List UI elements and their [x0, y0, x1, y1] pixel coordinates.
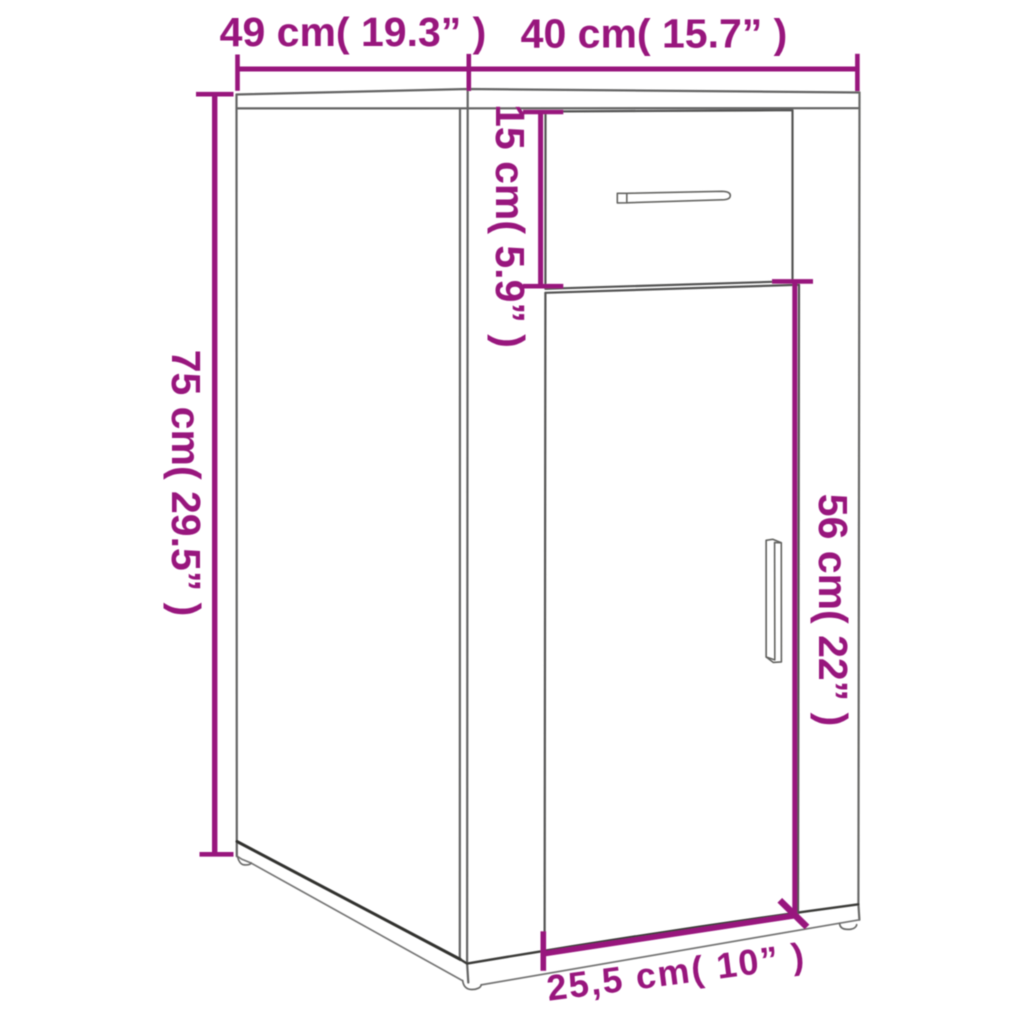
svg-text:56 cm( 22” ): 56 cm( 22” ): [810, 494, 856, 726]
svg-text:75 cm( 29.5” ): 75 cm( 29.5” ): [163, 350, 209, 617]
svg-text:15 cm( 5.9” ): 15 cm( 5.9” ): [487, 104, 533, 348]
svg-text:49 cm( 19.3” ): 49 cm( 19.3” ): [220, 9, 487, 55]
svg-text:40 cm( 15.7” ): 40 cm( 15.7” ): [521, 11, 788, 57]
